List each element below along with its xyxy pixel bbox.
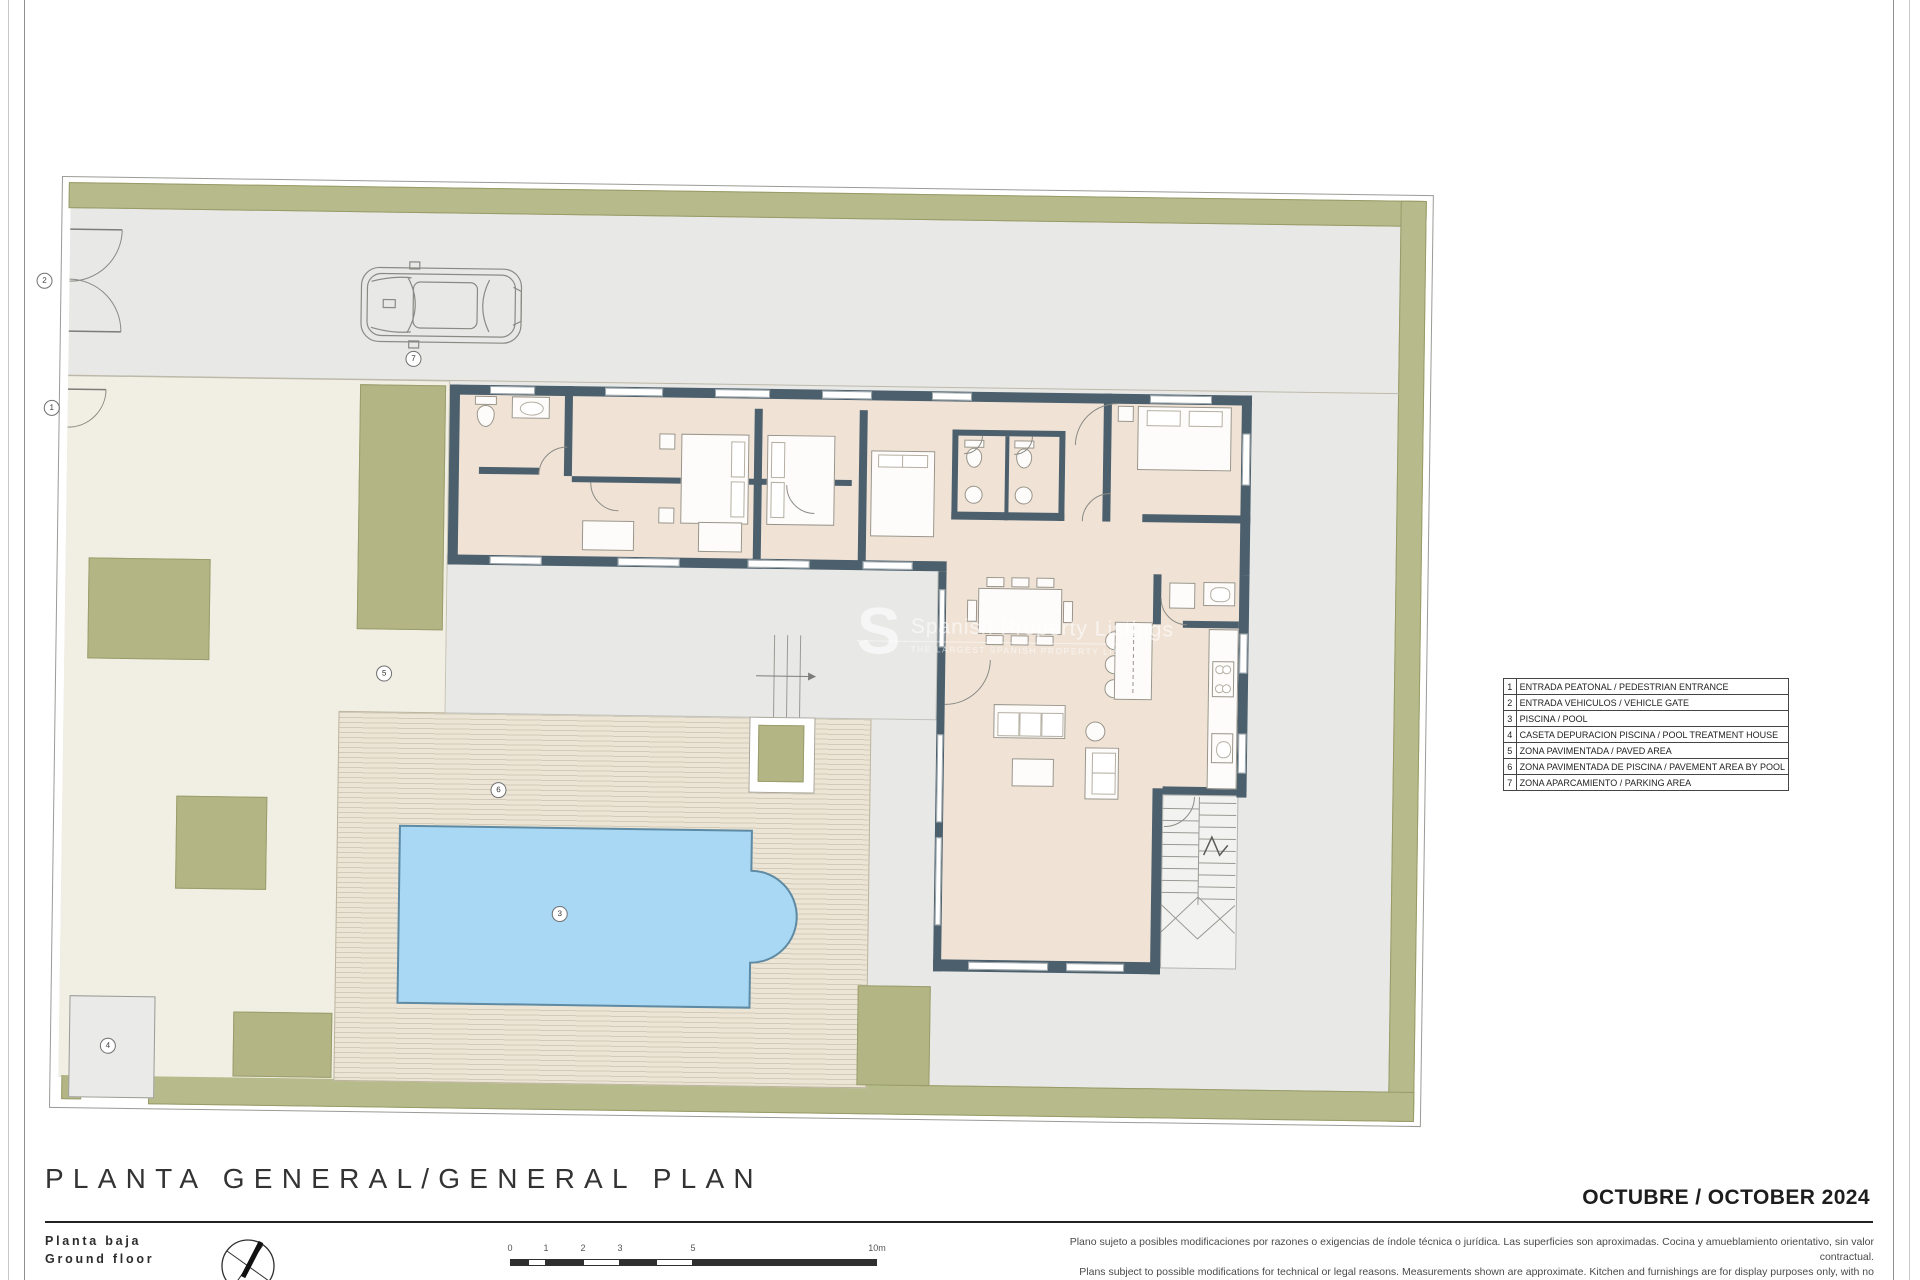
- scale-segment: [693, 1259, 877, 1266]
- nightstand: [1118, 406, 1134, 422]
- page-title: PLANTA GENERAL/GENERAL PLAN: [45, 1163, 763, 1195]
- scale-segment: [583, 1259, 620, 1266]
- coffee-table: [1012, 758, 1054, 787]
- window-master-east: [1242, 434, 1251, 486]
- plan-date: OCTUBRE / OCTOBER 2024: [1582, 1186, 1870, 1210]
- wall-master-south: [1142, 514, 1250, 524]
- glass-door: [936, 734, 943, 822]
- legend-row: 1ENTRADA PEATONAL / PEDESTRIAN ENTRANCE: [1504, 679, 1789, 695]
- sheet-frame-right-outer: [1909, 0, 1910, 1280]
- marker-vehicle-gate: 2: [36, 273, 52, 289]
- bed: [680, 434, 749, 525]
- window: [490, 386, 535, 395]
- scale-tick-label: 5: [690, 1243, 695, 1253]
- window: [748, 560, 810, 569]
- kitchen-counter: [1207, 629, 1239, 789]
- scale-tick-label: 3: [617, 1243, 622, 1253]
- floor-label: Planta baja Ground floor: [45, 1232, 154, 1268]
- legend-row: 2ENTRADA VEHICULOS / VEHICLE GATE: [1504, 695, 1789, 711]
- exterior-stairs-area: [1160, 794, 1238, 969]
- wardrobe: [698, 522, 742, 553]
- scale-segment: [620, 1259, 656, 1266]
- chair: [1036, 578, 1054, 588]
- window: [822, 391, 872, 400]
- window-kitchen: [1239, 633, 1248, 673]
- scale-tick-label: 0: [507, 1243, 512, 1253]
- planting-strip-house-west: [357, 384, 446, 630]
- wall-bath1: [564, 386, 573, 476]
- window: [863, 561, 913, 570]
- scale-segment: [546, 1259, 583, 1266]
- toilet-tank: [475, 396, 497, 405]
- legend-row: 4CASETA DEPURACION PISCINA / POOL TREATM…: [1504, 727, 1789, 743]
- window: [618, 558, 680, 567]
- compass-icon: [218, 1236, 278, 1280]
- legend-row: 6ZONA PAVIMENTADA DE PISCINA / PAVEMENT …: [1504, 759, 1789, 775]
- legend-row: 5ZONA PAVIMENTADA / PAVED AREA: [1504, 743, 1789, 759]
- window-kitchen: [1238, 733, 1247, 773]
- floor-label-en: Ground floor: [45, 1250, 154, 1268]
- washing-machine: [1169, 583, 1195, 609]
- bed: [766, 435, 835, 526]
- marker-paved-area: 5: [376, 665, 392, 681]
- disclaimer: Plano sujeto a posibles modificaciones p…: [1034, 1235, 1874, 1280]
- nightstand: [658, 507, 674, 523]
- toilet-tank: [1014, 440, 1034, 448]
- window: [605, 388, 663, 397]
- wall-wc-south: [951, 511, 1064, 521]
- scale-tick-label: 2: [580, 1243, 585, 1253]
- planting-patch-left: [87, 557, 210, 660]
- glass-door-south: [968, 962, 1048, 971]
- watermark: S Spanish Property Listings THE LARGEST …: [856, 600, 1120, 664]
- watermark-logo: S: [856, 600, 901, 661]
- planting-patch-center: [175, 796, 267, 890]
- marker-pool-treatment: 4: [100, 1038, 116, 1054]
- sheet-frame-left-inner: [24, 0, 25, 1280]
- hob: [1212, 661, 1235, 697]
- sheet-frame-right-inner: [1893, 0, 1894, 1280]
- toilet-tank: [964, 440, 984, 448]
- planting-patch-bottom: [232, 1011, 332, 1077]
- legend-row: 3PISCINA / POOL: [1504, 711, 1789, 727]
- marker-pool: 3: [552, 906, 568, 922]
- wardrobe: [582, 520, 634, 551]
- floor-label-es: Planta baja: [45, 1232, 154, 1250]
- planting-patch-deck-corner: [856, 985, 930, 1086]
- sheet-frame-left-outer: [8, 0, 9, 1280]
- glass-door-south: [1066, 963, 1124, 972]
- laundry-sink: [1203, 582, 1235, 606]
- wall-laundry-west: [1153, 574, 1162, 624]
- scale-segment: [510, 1259, 528, 1266]
- legend-table: 1ENTRADA PEATONAL / PEDESTRIAN ENTRANCE …: [1503, 678, 1789, 791]
- scale-tick-label: 10m: [868, 1243, 886, 1253]
- sofa: [993, 704, 1065, 739]
- window: [932, 392, 972, 401]
- wc-sink: [965, 486, 983, 504]
- sofa-2: [1084, 747, 1119, 799]
- scale-segment: [528, 1259, 546, 1266]
- disclaimer-es: Plano sujeto a posibles modificaciones p…: [1034, 1235, 1874, 1265]
- wall-bath1-south: [479, 467, 539, 475]
- window: [1150, 395, 1212, 404]
- glass-door: [935, 837, 942, 925]
- title-rule: [45, 1221, 1873, 1223]
- nightstand: [659, 433, 675, 449]
- wall-wc-west: [951, 429, 958, 519]
- bathroom-sink: [512, 396, 550, 419]
- chair: [986, 577, 1004, 587]
- scale-tick-label: 1: [543, 1243, 548, 1253]
- window: [490, 556, 542, 565]
- wall-laundry-south: [1183, 621, 1239, 629]
- window: [715, 389, 770, 398]
- wall-wc-east: [1058, 431, 1065, 521]
- plan-sheet: { "sheet": { "title": "PLANTA GENERAL/GE…: [0, 0, 1920, 1280]
- scale-segment: [656, 1259, 693, 1266]
- legend-row: 7ZONA APARCAMIENTO / PARKING AREA: [1504, 775, 1789, 791]
- site-plan: S Spanish Property Listings THE LARGEST …: [49, 176, 1434, 1127]
- master-bed: [1137, 406, 1232, 471]
- disclaimer-en: Plans subject to possible modifications …: [1034, 1265, 1874, 1280]
- kitchen-sink: [1211, 733, 1233, 763]
- planter: [758, 725, 805, 783]
- chair: [1011, 577, 1029, 587]
- marker-pedestrian-entrance: 1: [44, 400, 60, 416]
- bed: [870, 450, 935, 537]
